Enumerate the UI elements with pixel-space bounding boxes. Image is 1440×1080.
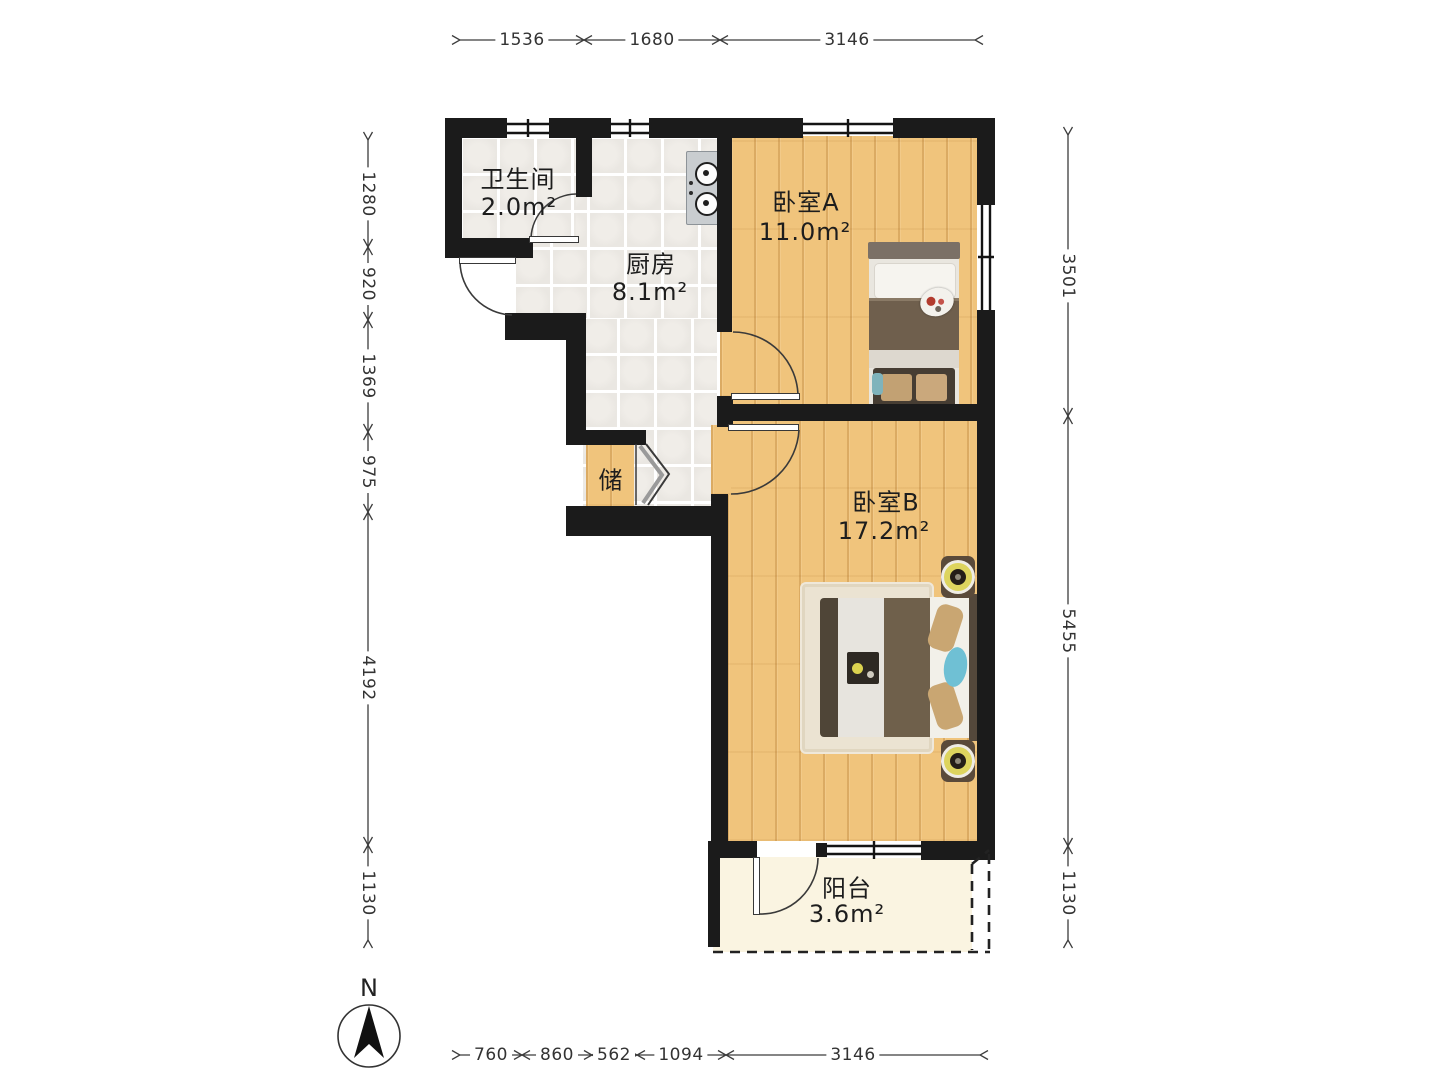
balcony-door-leaf — [753, 857, 760, 915]
bench-cushion — [881, 374, 912, 401]
bathroom-door-leaf — [529, 236, 579, 243]
wall-segment — [921, 841, 995, 860]
north-compass-icon — [338, 1005, 400, 1067]
dim-left-3: 975 — [358, 451, 378, 493]
wall-segment — [977, 133, 995, 205]
dim-left-4: 4192 — [358, 651, 378, 704]
dim-bottom-3: 1094 — [654, 1045, 707, 1065]
bedside-stool — [941, 740, 975, 782]
wall-segment — [445, 118, 462, 245]
dim-bottom-4: 3146 — [826, 1045, 879, 1065]
wall-segment — [717, 133, 732, 332]
bench-cushion — [916, 374, 947, 401]
room-label-storage: 储 — [599, 461, 624, 496]
bedroom-a-door-leaf — [731, 393, 800, 400]
bedside-stool — [941, 556, 975, 598]
wall-segment — [816, 843, 827, 857]
room-label-bathroom: 卫生间 — [481, 160, 556, 195]
bed-blanket — [884, 598, 930, 737]
wall-segment — [566, 313, 586, 445]
bed-headboard — [868, 242, 960, 259]
wall-segment — [711, 494, 728, 850]
room-label-bedroom-a: 卧室A — [772, 183, 839, 218]
bed-tray — [847, 652, 879, 684]
dim-right-2: 1130 — [1058, 866, 1078, 919]
room-label-balcony: 阳台 — [822, 869, 872, 904]
dim-left-2: 1369 — [358, 349, 378, 402]
stove-burner-dot — [703, 170, 709, 176]
wall-segment — [977, 310, 995, 860]
dim-bottom-2: 562 — [593, 1045, 635, 1065]
dim-right-1: 5455 — [1058, 604, 1078, 657]
bed-bedroom-b — [820, 597, 982, 738]
bed-bedroom-a — [868, 242, 960, 408]
room-label-kitchen: 厨房 — [626, 245, 676, 280]
room-area-balcony: 3.6m² — [809, 900, 885, 928]
teal-pillow — [872, 373, 883, 395]
stove-knob — [689, 191, 693, 195]
wall-segment — [445, 238, 533, 258]
floorplan-canvas: 卫生间 2.0m² 厨房 8.1m² 卧室A 11.0m² 卧室B 17.2m²… — [0, 0, 1440, 1080]
bedroom-b-door-leaf — [728, 424, 799, 431]
room-area-kitchen: 8.1m² — [612, 278, 688, 306]
dim-top-0: 1536 — [495, 30, 548, 50]
room-area-bedroom-a: 11.0m² — [759, 218, 851, 246]
bed-footboard — [820, 598, 838, 737]
entrance-door-leaf — [459, 257, 516, 264]
bedroom-b-threshold — [711, 425, 731, 495]
wall-segment — [566, 506, 728, 536]
dim-left-1: 920 — [358, 263, 378, 305]
dim-top-2: 3146 — [820, 30, 873, 50]
dim-top-1: 1680 — [625, 30, 678, 50]
stove-knob — [689, 181, 693, 185]
room-label-bedroom-b: 卧室B — [852, 483, 919, 518]
wall-segment — [576, 133, 592, 197]
dim-bottom-1: 860 — [536, 1045, 578, 1065]
dim-right-0: 3501 — [1058, 249, 1078, 302]
stove-burner-dot — [703, 200, 709, 206]
wall-segment — [708, 841, 720, 947]
room-area-bedroom-b: 17.2m² — [838, 517, 930, 545]
room-area-bathroom: 2.0m² — [481, 193, 557, 221]
dim-bottom-0: 760 — [470, 1045, 512, 1065]
bed-sheet-fold — [869, 350, 959, 368]
bedroom-a-threshold — [720, 332, 734, 397]
dim-left-5: 1130 — [358, 866, 378, 919]
dim-left-0: 1280 — [358, 167, 378, 220]
compass-north-label: N — [360, 974, 378, 1002]
wall-segment — [717, 404, 977, 421]
wall-segment — [566, 430, 646, 445]
